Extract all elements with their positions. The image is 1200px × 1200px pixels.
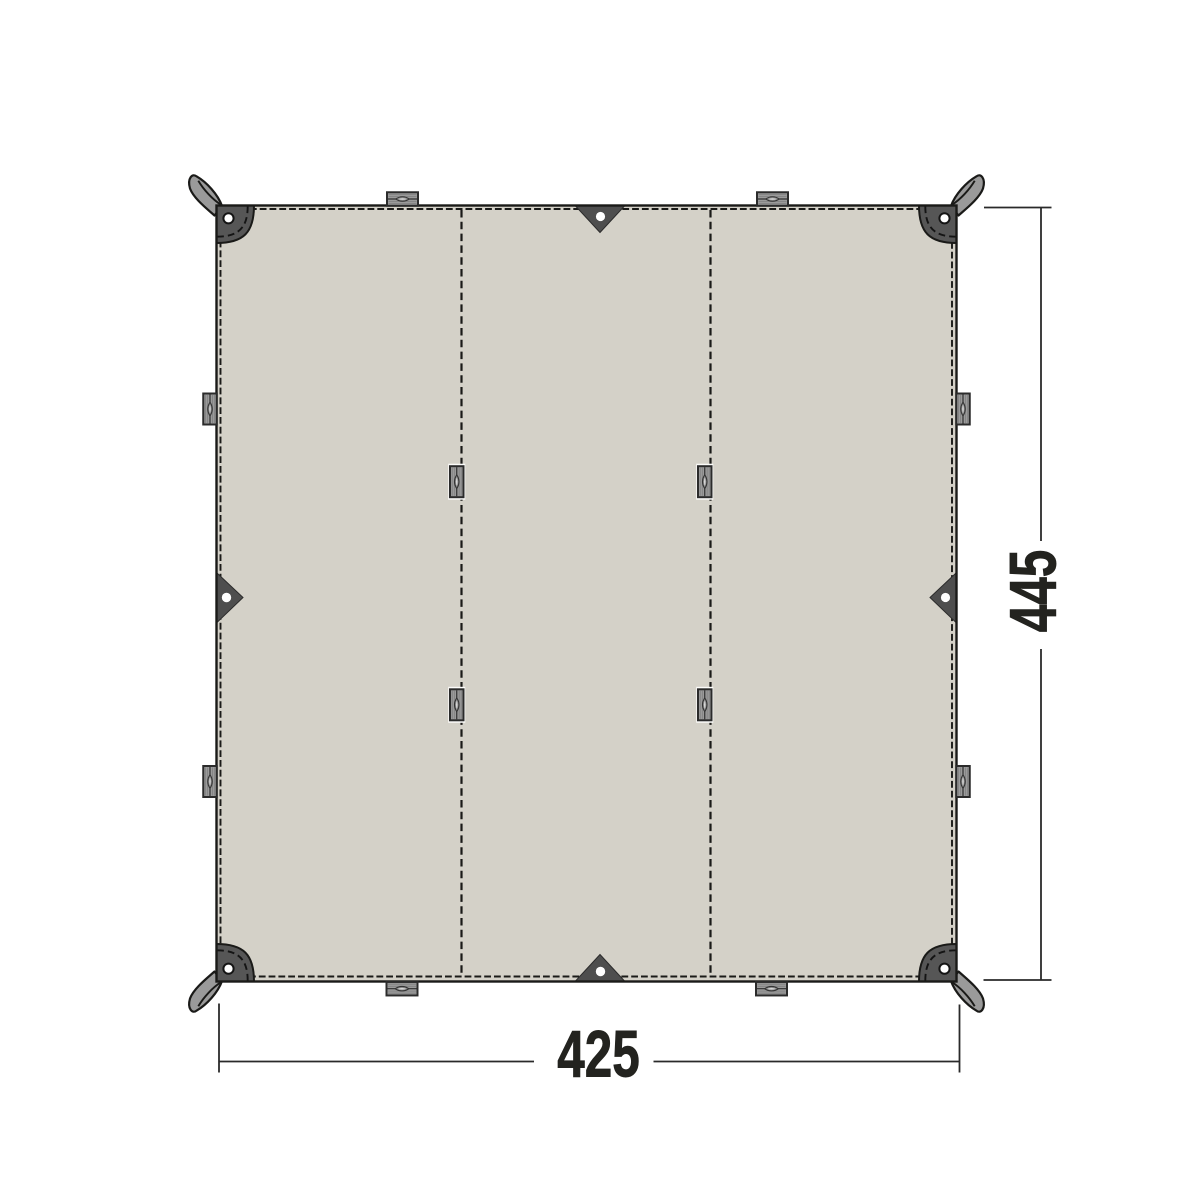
svg-text:445: 445 <box>997 550 1070 632</box>
svg-text:425: 425 <box>557 1018 639 1091</box>
